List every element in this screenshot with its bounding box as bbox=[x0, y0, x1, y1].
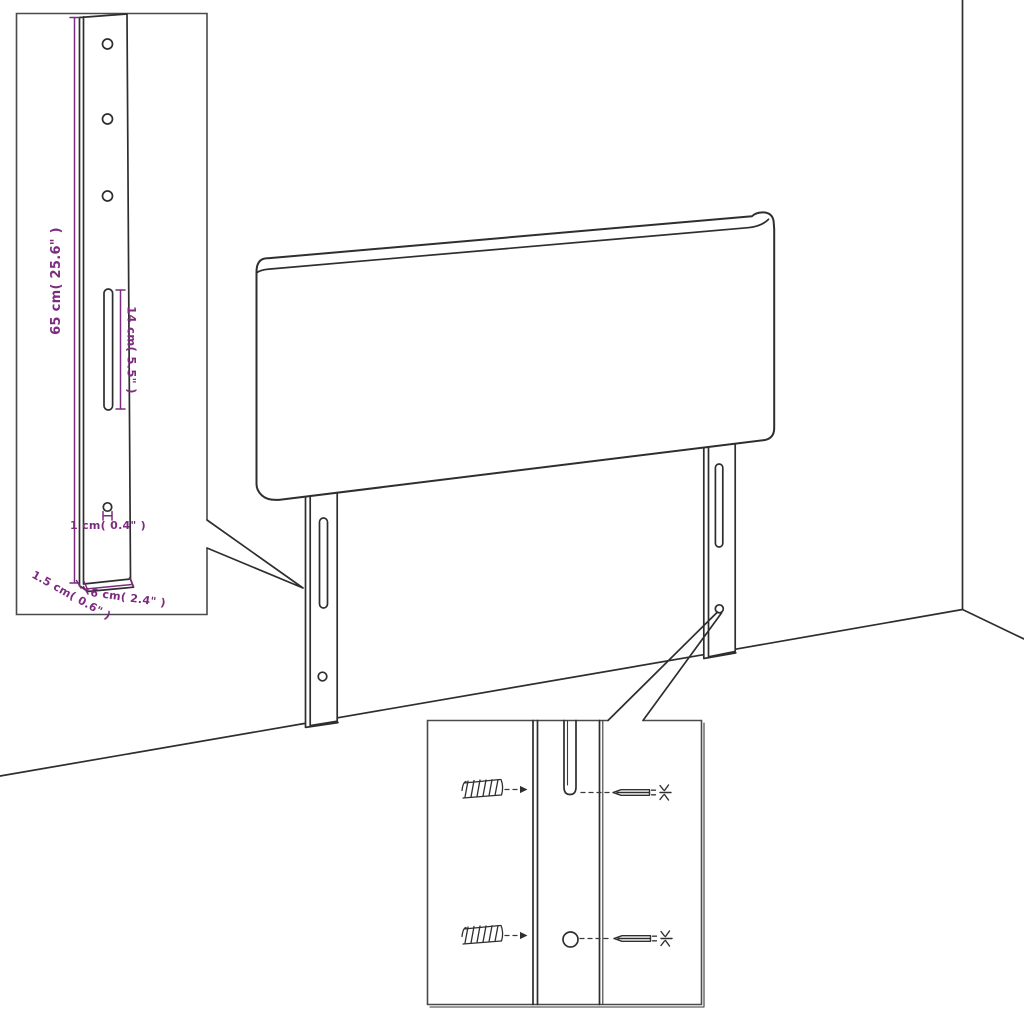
height-dimension-label: 65 cm( 25.6" ) bbox=[49, 227, 64, 335]
headboard-panel bbox=[257, 212, 775, 500]
right-leg-slot bbox=[715, 464, 722, 547]
leg-detail-callout-lines bbox=[207, 520, 303, 588]
right-leg-edges bbox=[704, 444, 736, 658]
slot-dimension-label: 14 cm( 5.5" ) bbox=[125, 306, 139, 394]
left-leg-slot bbox=[320, 518, 328, 608]
headboard-right-leg bbox=[704, 444, 736, 658]
floor-line-right bbox=[963, 610, 1024, 640]
hole-dimension-label: 1 cm( 0.4" ) bbox=[70, 519, 146, 532]
mounting-detail-inset bbox=[428, 612, 722, 1007]
headboard-panel-outline bbox=[257, 212, 775, 500]
diagram-canvas: 65 cm( 25.6" ) 14 cm( 5.5" ) 1 cm( 0.4" … bbox=[0, 0, 1024, 1024]
headboard-diagram: 65 cm( 25.6" ) 14 cm( 5.5" ) 1 cm( 0.4" … bbox=[0, 0, 1024, 1024]
left-leg-edges bbox=[306, 494, 339, 728]
left-leg-hole bbox=[318, 672, 327, 681]
headboard-left-leg bbox=[306, 494, 339, 728]
right-leg-hole bbox=[715, 605, 723, 613]
